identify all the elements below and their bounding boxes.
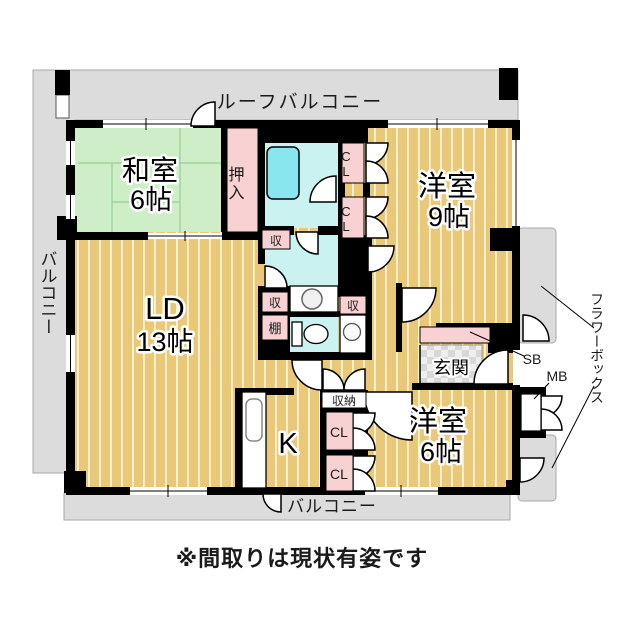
floor-plan-drawing: ルーフバルコニー バルコニー バルコニー 和室 6帖 LD 13帖 洋室 9帖 … (0, 0, 640, 640)
western9-name: 洋室 (418, 170, 476, 203)
shu-label: 収 (347, 299, 359, 313)
balcony-partition (56, 95, 69, 118)
toilet-tank (292, 322, 302, 346)
shoe-box (420, 327, 490, 343)
bathtub (267, 147, 299, 199)
roof-balcony-label: ルーフバルコニー (217, 92, 383, 113)
shuno-label: 収納 (332, 394, 356, 408)
shu-label: 収 (270, 234, 282, 248)
cl-label: CL (330, 466, 348, 482)
toilet-bowl (304, 325, 328, 344)
cl-label: CL (330, 424, 348, 440)
sb-label: SB (523, 351, 542, 367)
washitsu-name: 和室 (122, 155, 178, 186)
floor-plan-page: ルーフバルコニー バルコニー バルコニー 和室 6帖 LD 13帖 洋室 9帖 … (0, 0, 640, 640)
washbasin (302, 289, 322, 309)
western6-name: 洋室 (409, 405, 467, 438)
western9-size: 9帖 (428, 202, 470, 232)
meter-box (521, 394, 541, 431)
left-balcony-label: バルコニー (38, 250, 57, 335)
kitchen-label: K (278, 428, 298, 460)
ld-name: LD (145, 291, 185, 326)
shu-label: 収 (269, 296, 281, 310)
cl-label: CL (339, 149, 354, 179)
entrance-label: 玄関 (433, 358, 469, 378)
caption: ※間取りは現状有姿です (176, 546, 428, 571)
ld-size: 13帖 (136, 327, 193, 357)
flower-box-label: フラワーボックス (589, 292, 605, 404)
kitchen-sink (246, 399, 262, 441)
corner-sink (344, 324, 361, 341)
washitsu-size: 6帖 (130, 185, 172, 215)
oshiire-label: 押入 (226, 166, 245, 202)
tana-label: 棚 (268, 321, 281, 336)
meter-box-door (541, 409, 562, 430)
mb-label: MB (547, 368, 568, 384)
bottom-balcony-label: バルコニー (287, 497, 377, 516)
western6-size: 6帖 (420, 437, 462, 467)
cl-label: CL (339, 204, 354, 234)
